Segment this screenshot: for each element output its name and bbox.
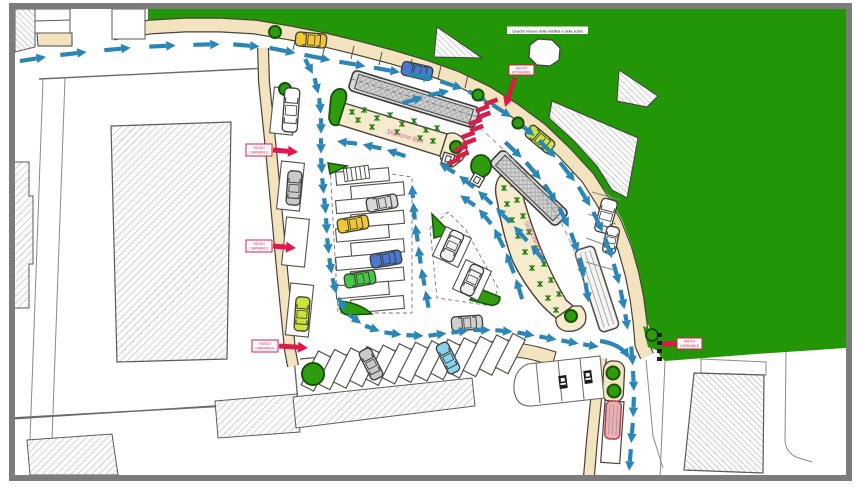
svg-text:CARRABILE: CARRABILE: [249, 151, 269, 155]
svg-text:PASSO: PASSO: [684, 340, 696, 344]
svg-text:PASSO: PASSO: [253, 146, 265, 150]
svg-text:ATTRAVERS.: ATTRAVERS.: [512, 70, 532, 74]
svg-text:CARRABILE: CARRABILE: [680, 344, 700, 348]
svg-text:CARRABILE: CARRABILE: [249, 247, 269, 251]
svg-text:Quadro misure della viabilita: Quadro misure della viabilita e della so…: [512, 29, 583, 33]
svg-text:PASSO: PASSO: [253, 242, 265, 246]
svg-text:CARRABILE: CARRABILE: [255, 347, 275, 351]
svg-text:PASSO: PASSO: [259, 342, 271, 346]
